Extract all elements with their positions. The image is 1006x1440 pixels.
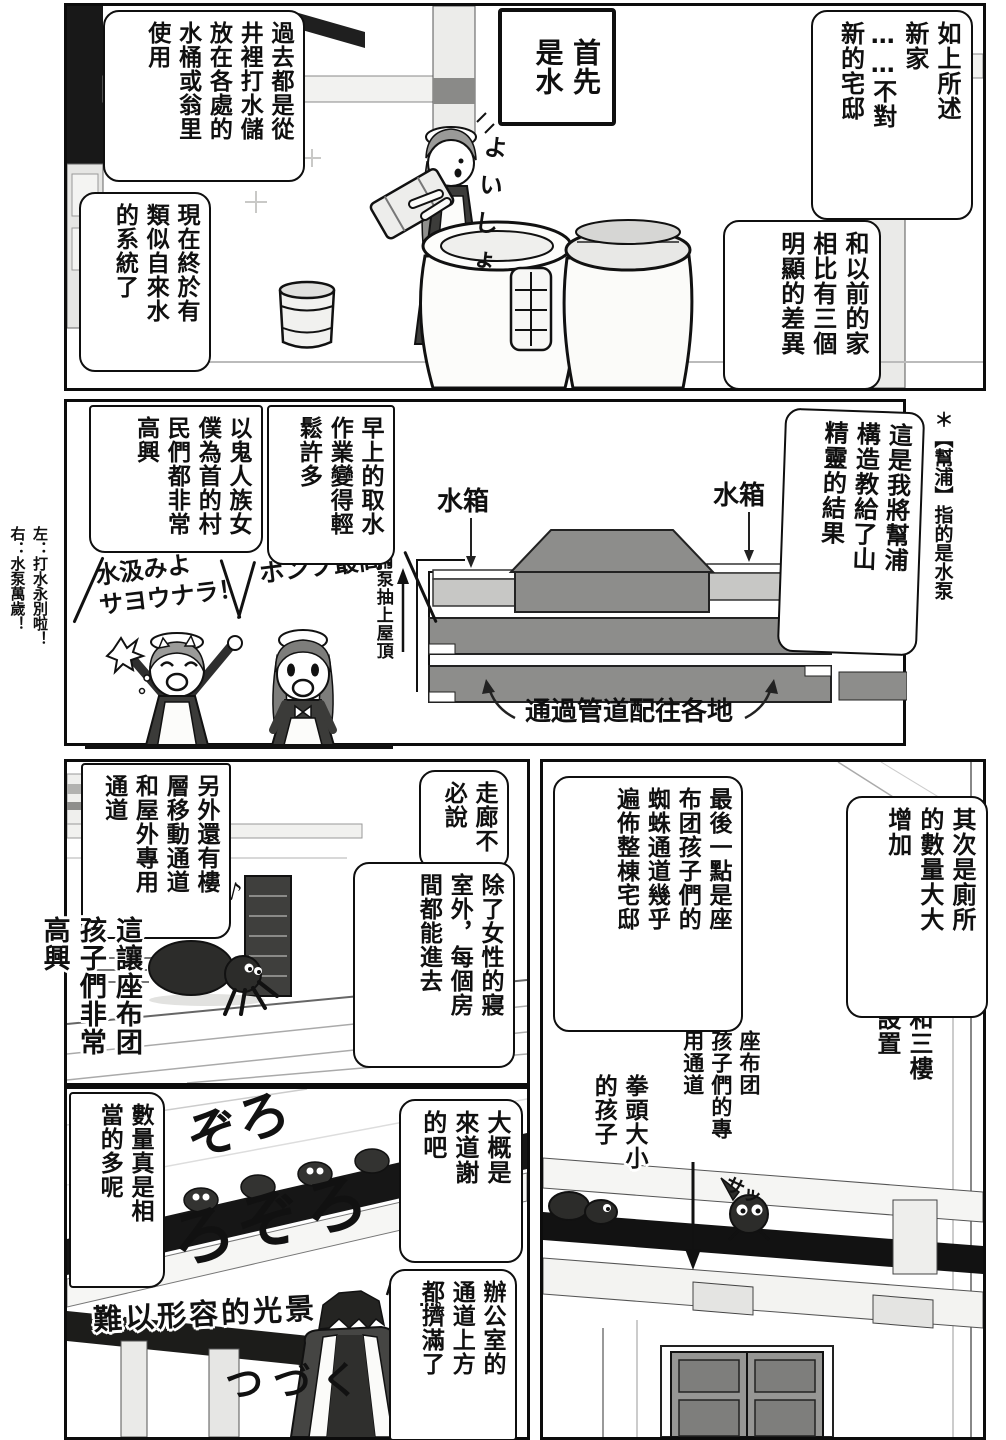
- speech-bubble-pump-result: 這是我將幫浦 構造教給了山 精靈的結果: [777, 408, 925, 657]
- speech-bubble-thanks: 大概是 來道謝 的吧: [399, 1099, 523, 1263]
- translator-note: 左：打水永別啦！ 右：水泵萬歲！: [6, 526, 51, 728]
- pump-footnote: ＊【幫浦】指的是水泵: [928, 410, 957, 702]
- speech-bubble-morning: 早上的取水 作業變得輕 鬆許多: [267, 405, 395, 565]
- speech-bubble-rooms: 除了女性的寢 室外，每個房 間都能進去: [353, 862, 515, 1068]
- small-barrel: [280, 282, 334, 348]
- label-fist-size: 拳頭大小 的孩子: [549, 1074, 649, 1246]
- water-tank-left: [433, 579, 515, 606]
- speech-bubble-toilets: 其次是廁所 的數量大大 增加: [846, 796, 988, 1018]
- beam-post: [893, 1200, 937, 1274]
- chibi-maids-illustration: [85, 598, 393, 749]
- panel-5-office: 數量真是相 當的多呢 大概是 來道謝 的吧 辦公室的 通道上方 都擠滿了 ぞろ …: [64, 1086, 530, 1440]
- chibi-maid-oni: [107, 633, 242, 749]
- speech-bubble-past: 過去都是從 井裡打水儲 放在各處的 水桶或翁里 使用: [103, 10, 305, 182]
- tank-label-left: 水箱: [437, 486, 489, 517]
- jar-ladder: [511, 268, 551, 350]
- speech-bubble-spiderways: 最後一點是座 布团孩子們的 蜘蛛通道幾乎 遍佈整棟宅邸: [553, 776, 743, 1032]
- caption-scene-dots: …。: [419, 1287, 451, 1311]
- to-be-continued: つづく: [224, 1349, 370, 1409]
- center-pillar: [433, 6, 475, 134]
- beam-stub: [693, 1282, 753, 1315]
- caption-happy: 這讓座布团 孩子們非常 高興: [30, 916, 144, 1094]
- speech-bubble-count: 數量真是相 當的多呢: [69, 1092, 165, 1288]
- panel-2-pump: 水箱 水箱 通過管道配往各地: [64, 399, 906, 746]
- speech-bubble-intro: 如上所述 新家 ……不對 新的宅邸: [811, 10, 973, 220]
- water-jar-lidded: [564, 220, 692, 388]
- distribution-label: 通過管道配往各地: [525, 696, 733, 724]
- speech-bubble-office: 辦公室的 通道上方 都擠滿了: [389, 1269, 517, 1440]
- house-body: [515, 572, 709, 612]
- house-roof: [511, 530, 713, 572]
- panel-3-spider-passages: 其次是廁所 的數量大大 增加 二樓和三樓 也有設置 最後一點是座 布团孩子們的 …: [540, 759, 986, 1440]
- manga-page: 如上所述 新家 ……不對 新的宅邸 和以前的家 相比有三個 明顯的差異 首先 是…: [0, 0, 1006, 1440]
- speech-bubble-villagers: 以鬼人族女 僕為首的村 民們都非常 高興: [89, 405, 263, 553]
- beam-stub: [873, 1295, 933, 1328]
- caption-box-first-water: 首先 是水: [498, 8, 616, 126]
- speech-bubble-passages: 另外還有樓 層移動通道 和屋外專用 通道: [81, 763, 231, 939]
- post: [121, 1341, 147, 1437]
- label-passage: 座布团 孩子們的專 用通道: [641, 1030, 763, 1188]
- panel-1-water-intro: 如上所述 新家 ……不對 新的宅邸 和以前的家 相比有三個 明顯的差異 首先 是…: [64, 3, 986, 391]
- tank-label-right: 水箱: [713, 480, 765, 511]
- dark-pillar: [67, 6, 103, 164]
- water-tank-right: [707, 573, 789, 600]
- diagonal-beam: [295, 12, 365, 48]
- door-illustration: [661, 1346, 833, 1437]
- speech-bubble-corridor: 走廊不 必說: [419, 770, 509, 870]
- chibi-maid-long-hair: [271, 630, 335, 749]
- speech-bubble-now: 現在終於有 類似自來水 的系統了: [79, 192, 211, 372]
- floor-slab-upper: [429, 618, 831, 654]
- hair: [319, 1291, 384, 1329]
- speech-bubble-compare: 和以前的家 相比有三個 明顯的差異: [723, 220, 881, 390]
